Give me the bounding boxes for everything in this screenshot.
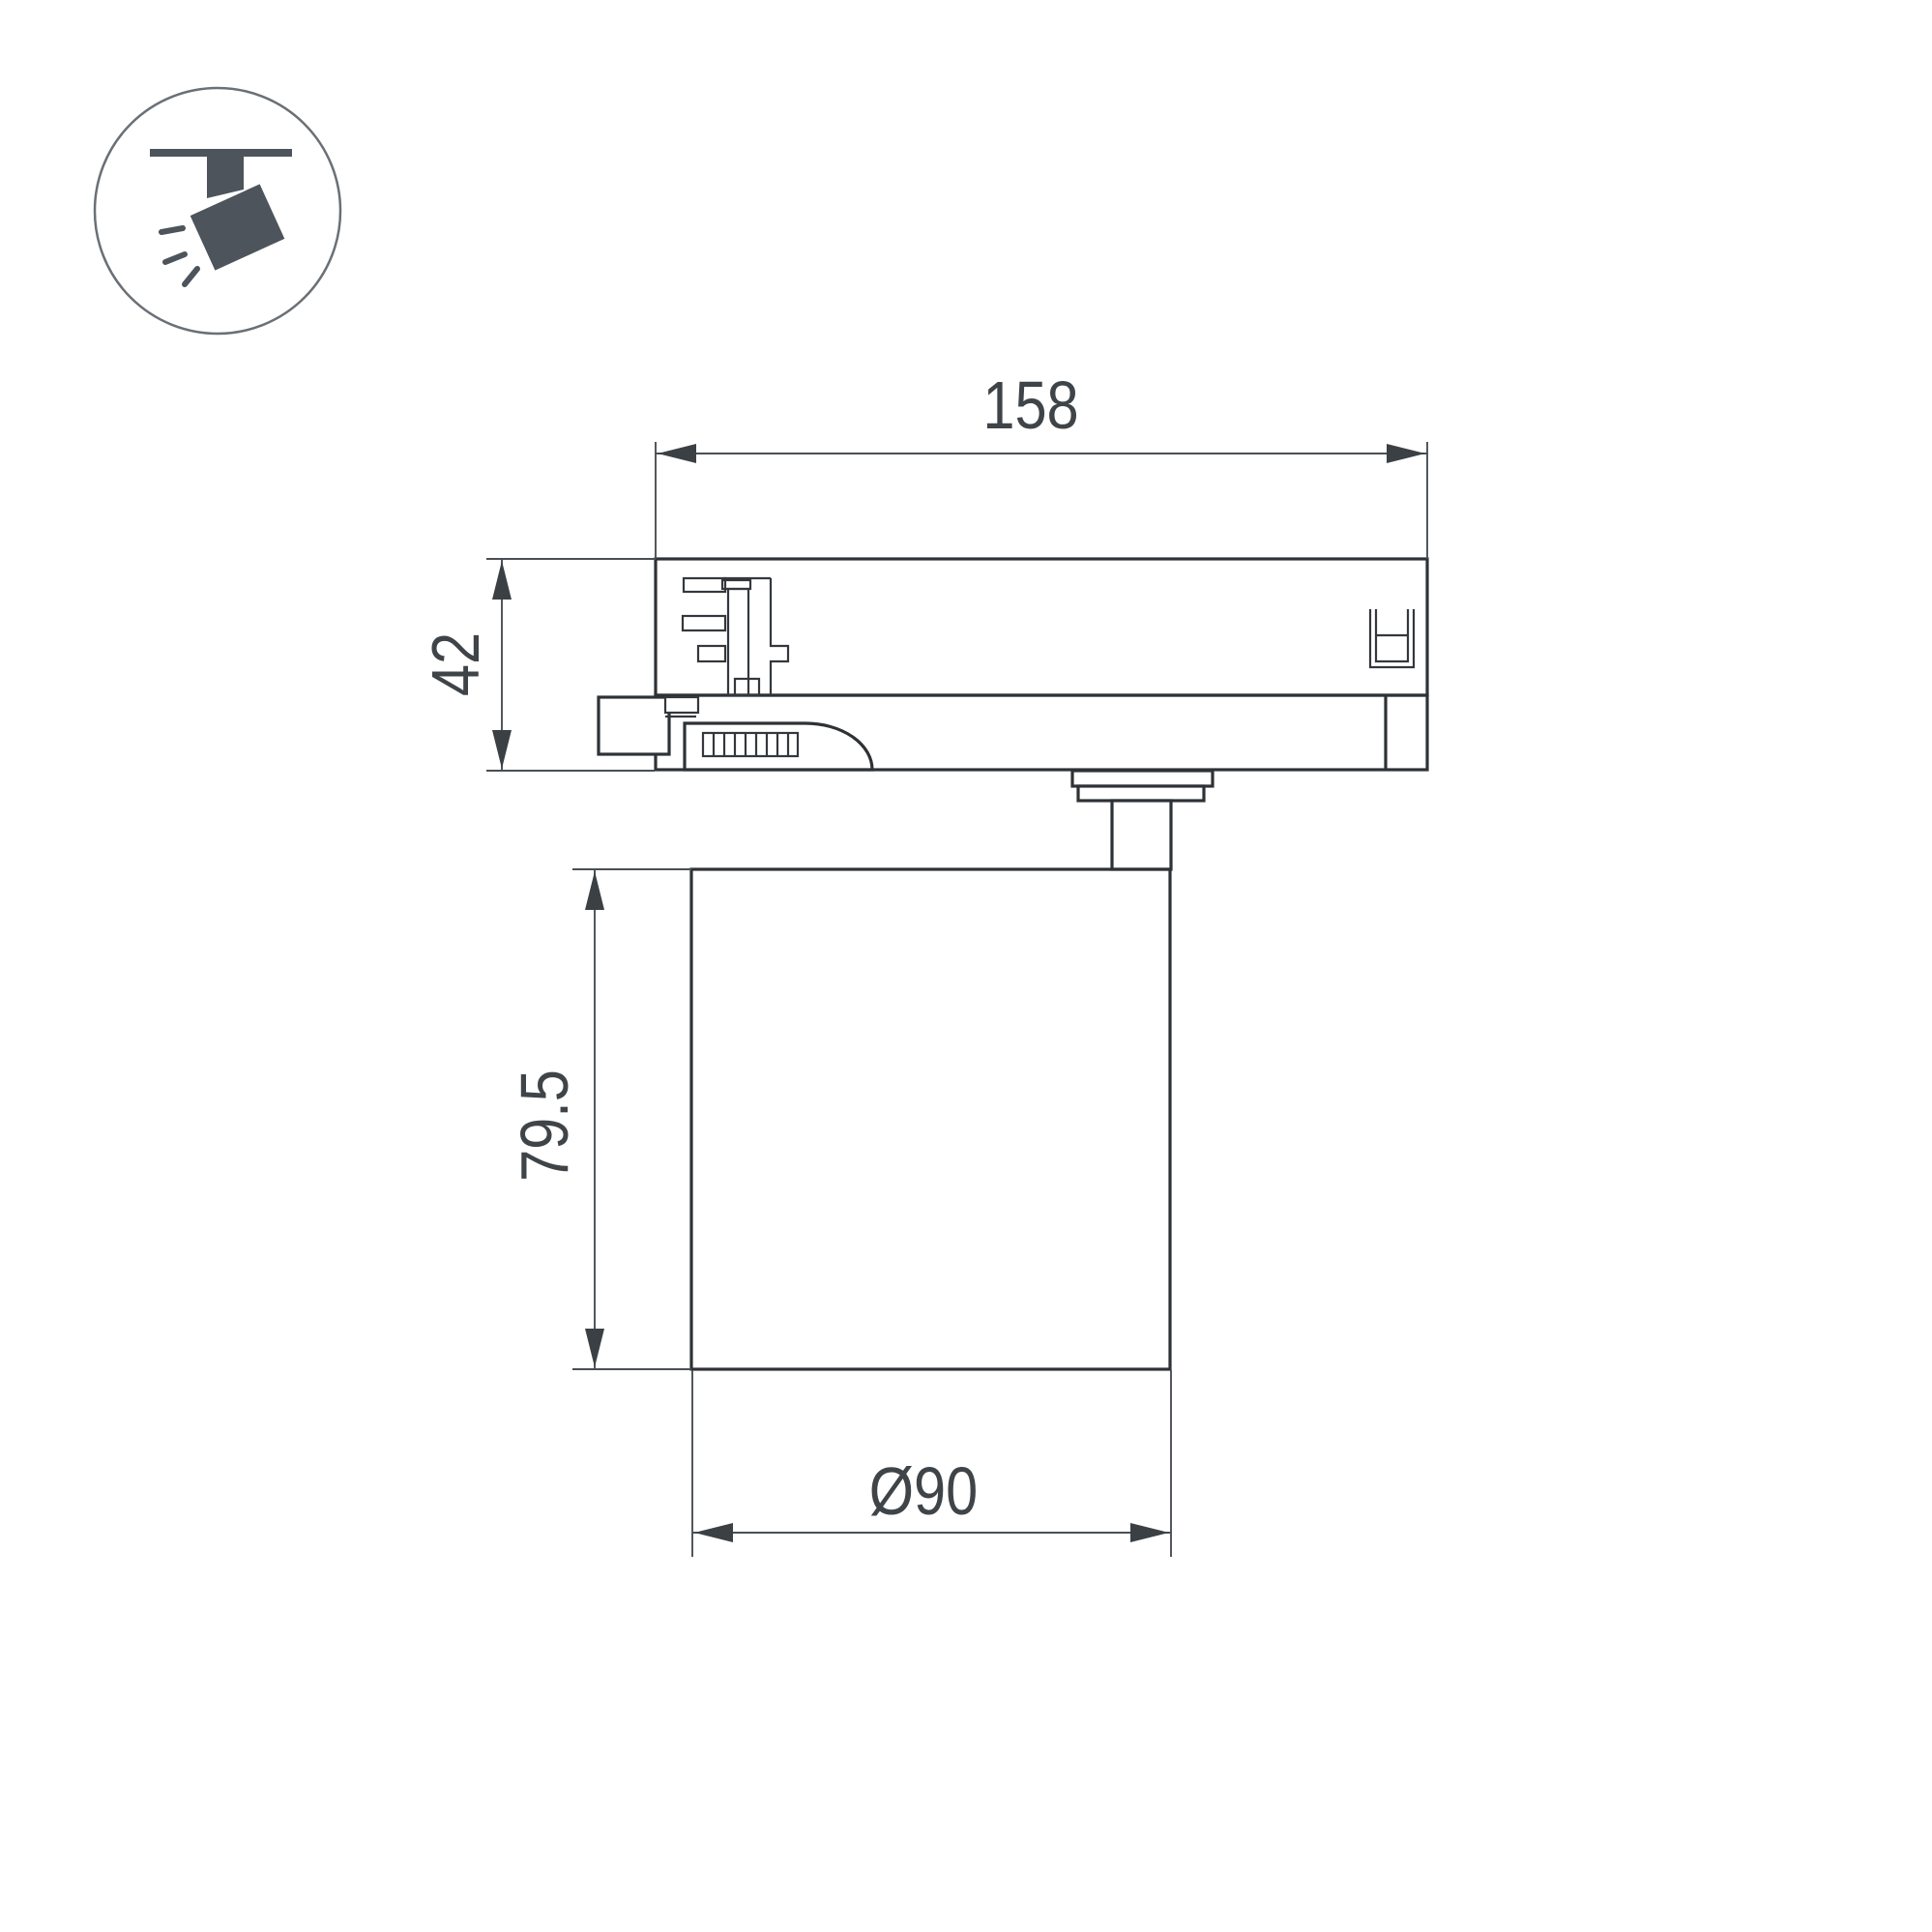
contact-prong	[683, 616, 725, 630]
track-adapter-drawing	[599, 559, 1427, 869]
contact-prong	[698, 646, 725, 661]
height-dimension-label: 42	[422, 632, 489, 696]
lamp-body	[691, 869, 1170, 1369]
width-dimension	[656, 442, 1427, 559]
body-height-dimension-label: 79.5	[511, 1069, 578, 1182]
arrowhead-right	[1130, 1523, 1169, 1542]
end-clip	[1370, 609, 1414, 667]
mount-flange-lower	[1078, 786, 1204, 801]
arrowhead-right	[1387, 444, 1425, 463]
contact-prong	[684, 578, 725, 592]
diameter-dimension-label: Ø90	[869, 1457, 978, 1525]
contact-assembly	[683, 578, 788, 695]
contact-body-edge	[771, 578, 788, 695]
icon-light-ray	[165, 254, 185, 262]
icon-lamp-head	[190, 184, 285, 270]
arrowhead-up	[492, 561, 512, 600]
arrowhead-down	[492, 730, 512, 769]
icon-light-ray	[185, 269, 197, 284]
adapter-latch	[599, 697, 669, 754]
contact-cap	[722, 580, 750, 589]
contact-foot	[735, 679, 759, 695]
mount-flange-upper	[1072, 771, 1213, 786]
technical-drawing-canvas	[0, 0, 1932, 1932]
mount-stem	[1112, 801, 1171, 869]
arrowhead-left	[694, 1523, 733, 1542]
width-dimension-label: 158	[982, 371, 1078, 439]
technical-drawing-page: 158 42 79.5 Ø90	[0, 0, 1932, 1932]
body-height-dimension	[572, 869, 691, 1369]
track-spotlight-icon	[95, 88, 340, 334]
icon-light-ray	[161, 228, 183, 232]
latch-tab	[665, 697, 698, 713]
arrowhead-down	[585, 1329, 604, 1367]
arrowhead-left	[658, 444, 696, 463]
arrowhead-up	[585, 871, 604, 910]
icon-stem	[207, 155, 244, 198]
